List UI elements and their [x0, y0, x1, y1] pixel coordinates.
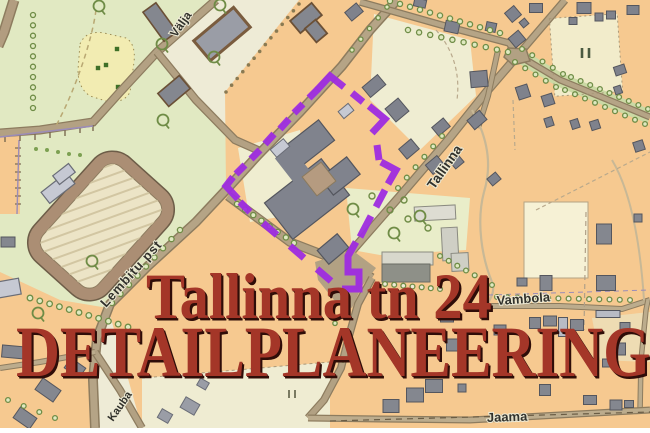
- svg-text:Jaama: Jaama: [487, 409, 529, 425]
